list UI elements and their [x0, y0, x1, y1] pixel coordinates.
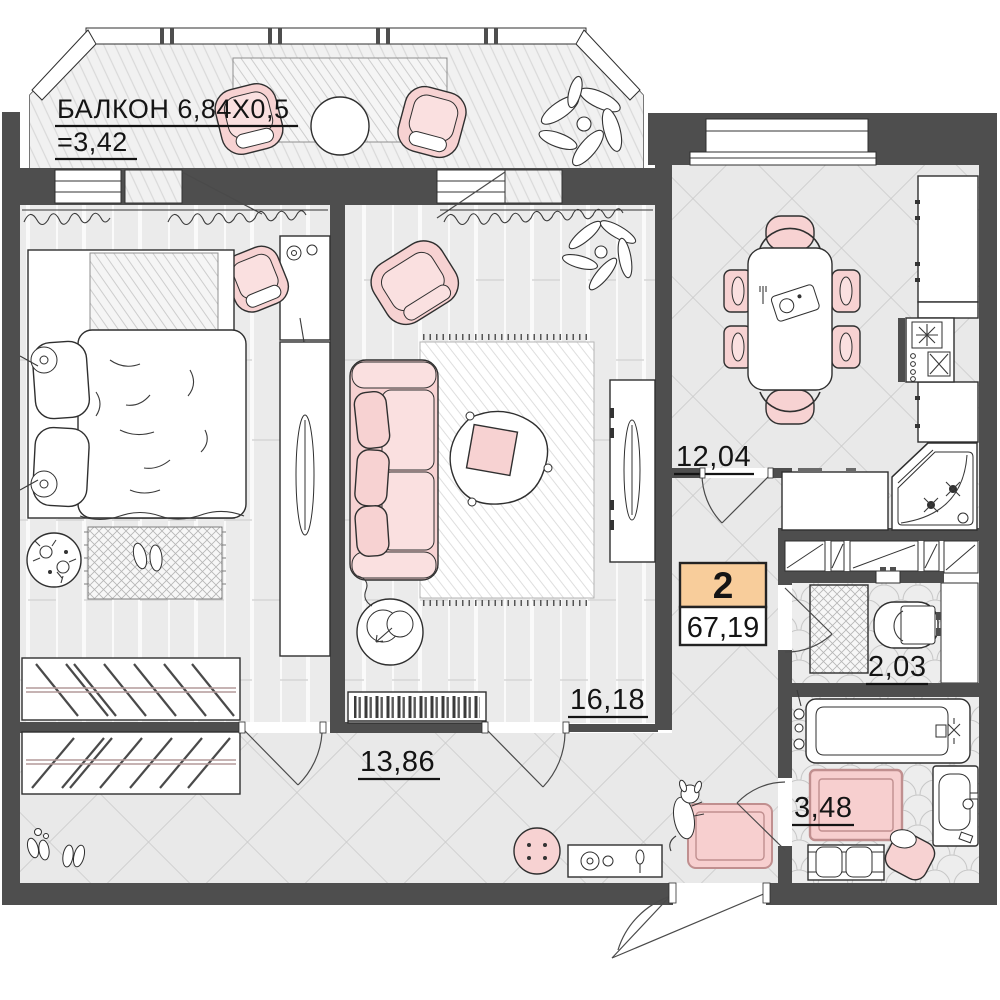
counter-handle-1	[798, 468, 822, 473]
kitchen-window-sill	[706, 119, 868, 153]
pouf	[514, 828, 560, 874]
hallway-sliding-wardrobe	[22, 732, 240, 794]
balcony-label-line2: =3,42	[57, 127, 128, 157]
bed	[20, 250, 246, 520]
living-area-label: 16,18	[570, 684, 645, 716]
living-balcony-door-opening	[505, 170, 562, 203]
balcony-table	[311, 97, 369, 155]
badge-rooms-count: 2	[713, 565, 734, 606]
floor-plan-canvas: БАЛКОН 6,84Х0,5 =3,42	[0, 0, 1000, 1000]
living-window-sill	[437, 170, 505, 203]
counter-handle-2	[846, 468, 856, 473]
hall-console	[568, 845, 662, 877]
wc-area-label: 2,03	[868, 651, 926, 683]
bedroom-balcony-door-opening	[125, 170, 182, 203]
bathroom-area-label: 3,48	[794, 792, 852, 824]
hallway-area-label: 13,86	[360, 746, 435, 778]
bed-duvet	[78, 330, 246, 518]
washing-machine	[810, 585, 868, 673]
balcony: БАЛКОН 6,84Х0,5 =3,42	[30, 28, 643, 170]
flush-plate	[876, 571, 900, 583]
balcony-label-line1: БАЛКОН 6,84Х0,5	[57, 94, 289, 124]
coffee-table-tray	[467, 425, 518, 476]
badge-total-area: 67,19	[687, 612, 760, 644]
bookshelf	[348, 692, 486, 723]
bathtub	[806, 699, 970, 763]
pet-bed	[688, 804, 772, 868]
bedroom-window	[55, 170, 121, 203]
kitchen-counter	[915, 176, 978, 442]
apartment-badge: 2 67,19	[680, 563, 766, 645]
flower-pot-icon	[27, 533, 81, 587]
bedroom-sliding-wardrobe	[22, 658, 240, 720]
kitchen-area-label: 12,04	[676, 441, 751, 473]
sofa	[350, 360, 438, 580]
dining-table	[748, 248, 832, 390]
floor-plan: БАЛКОН 6,84Х0,5 =3,42	[0, 0, 1000, 1000]
stove-icon	[898, 318, 954, 382]
bed-blanket-fold	[90, 253, 218, 333]
living-cabinet	[610, 380, 655, 562]
wc-duct	[941, 583, 978, 683]
kitchen-counter-bottom	[782, 472, 888, 530]
towel-bench	[808, 845, 884, 880]
bathroom-sink	[933, 766, 978, 846]
toilet-icon	[874, 602, 941, 648]
bedroom-rug	[84, 527, 226, 599]
